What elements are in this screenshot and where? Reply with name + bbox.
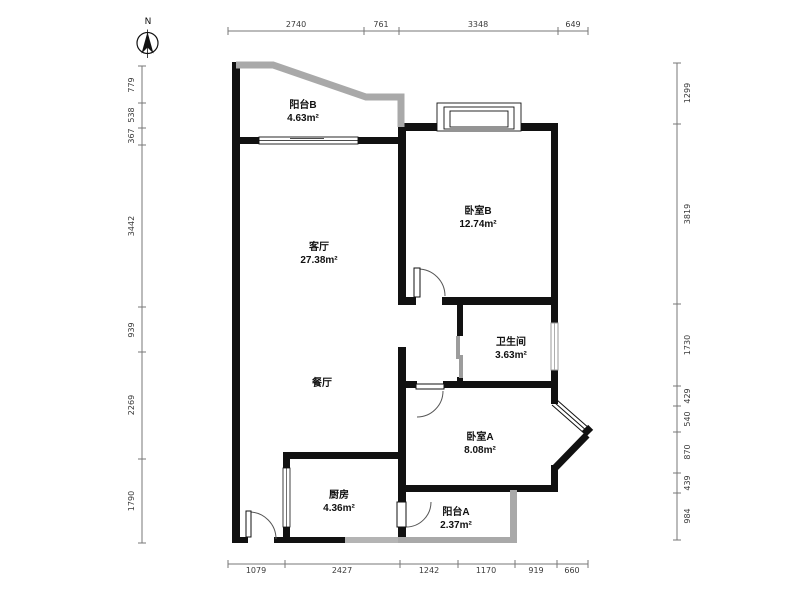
- dim-right-2: 1730: [683, 323, 693, 367]
- room-label-dining-room: 餐厅: [274, 377, 370, 390]
- room-label-kitchen: 厨房 4.36m²: [291, 489, 387, 515]
- dim-bottom-5: 660: [550, 566, 594, 576]
- dim-left-3: 3442: [127, 204, 137, 248]
- dim-bottom-3: 1170: [464, 566, 508, 576]
- floor-plan-page: N 阳台B 4.63m² 客厅 27.38m² 卧室B 12.74m² 卫生间 …: [0, 0, 800, 600]
- dim-top-2: 3348: [456, 20, 500, 30]
- kitchen-bottom-window: [345, 537, 398, 543]
- bedroom-b-door: [414, 268, 445, 297]
- dim-top-3: 649: [551, 20, 595, 30]
- room-label-balcony-a: 阳台A 2.37m²: [408, 506, 504, 532]
- dim-left-5: 2269: [127, 383, 137, 427]
- room-label-balcony-b: 阳台B 4.63m²: [255, 99, 351, 125]
- dim-right-1: 3819: [683, 192, 693, 236]
- floor-plan-drawing: [0, 0, 800, 600]
- dim-bottom-1: 2427: [320, 566, 364, 576]
- compass-n-label: N: [142, 17, 154, 27]
- room-label-bathroom: 卫生间 3.63m²: [463, 336, 559, 362]
- bathroom-sliding-door: [456, 336, 463, 378]
- kitchen-window: [283, 468, 290, 527]
- bedroom-b-bay-window: [437, 103, 521, 131]
- dim-top-0: 2740: [274, 20, 318, 30]
- living-room-window: [259, 137, 358, 144]
- dim-bottom-2: 1242: [407, 566, 451, 576]
- room-label-bedroom-a: 卧室A 8.08m²: [432, 431, 528, 457]
- dim-left-2: 367: [127, 114, 137, 158]
- dim-left-4: 939: [127, 308, 137, 352]
- entry-door: [246, 511, 276, 539]
- dim-right-0: 1299: [683, 71, 693, 115]
- dim-left-6: 1790: [127, 479, 137, 523]
- room-label-bedroom-b: 卧室B 12.74m²: [430, 205, 526, 231]
- dim-top-1: 761: [359, 20, 403, 30]
- bedroom-a-bay-window: [552, 400, 590, 434]
- bedroom-a-door: [416, 384, 444, 417]
- dim-right-7: 984: [683, 494, 693, 538]
- room-label-living-room: 客厅 27.38m²: [271, 241, 367, 267]
- dim-bottom-0: 1079: [234, 566, 278, 576]
- compass-north-icon: [137, 30, 158, 59]
